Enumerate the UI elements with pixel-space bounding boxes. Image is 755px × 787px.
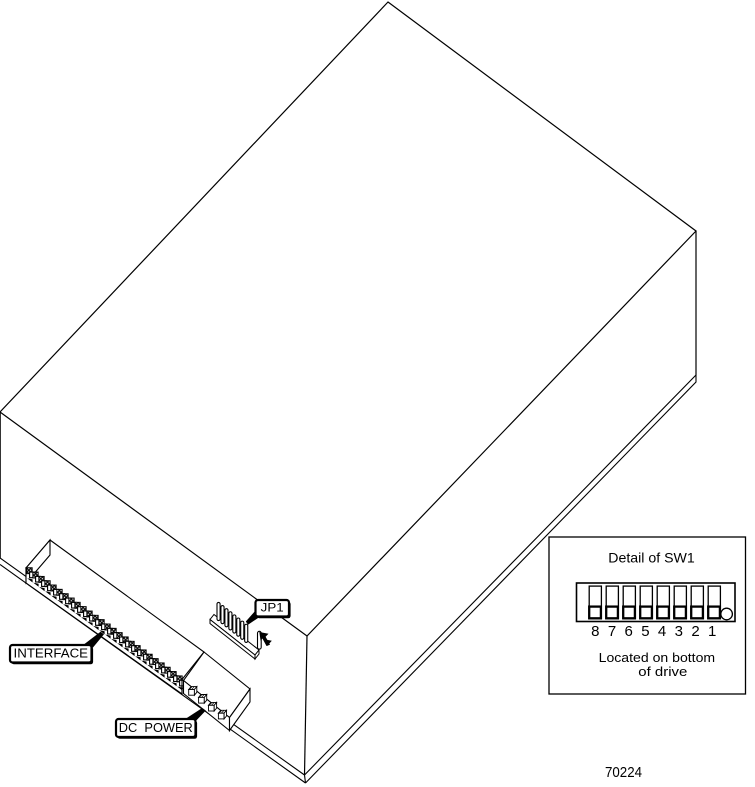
svg-text:5: 5 bbox=[641, 623, 649, 640]
svg-text:Located on bottom: Located on bottom bbox=[599, 650, 716, 665]
svg-text:4: 4 bbox=[658, 623, 666, 640]
svg-text:70224: 70224 bbox=[605, 764, 642, 781]
svg-text:Detail of SW1: Detail of SW1 bbox=[608, 550, 695, 566]
svg-text:JP1: JP1 bbox=[261, 603, 284, 615]
svg-text:1: 1 bbox=[708, 623, 716, 640]
svg-text:INTERFACE: INTERFACE bbox=[14, 646, 89, 661]
svg-text:8: 8 bbox=[591, 623, 599, 640]
svg-text:of drive: of drive bbox=[638, 664, 687, 679]
svg-text:2: 2 bbox=[691, 623, 699, 640]
svg-text:3: 3 bbox=[675, 623, 683, 640]
svg-text:DC POWER: DC POWER bbox=[119, 721, 193, 735]
svg-text:6: 6 bbox=[625, 623, 633, 640]
svg-text:7: 7 bbox=[608, 623, 616, 640]
